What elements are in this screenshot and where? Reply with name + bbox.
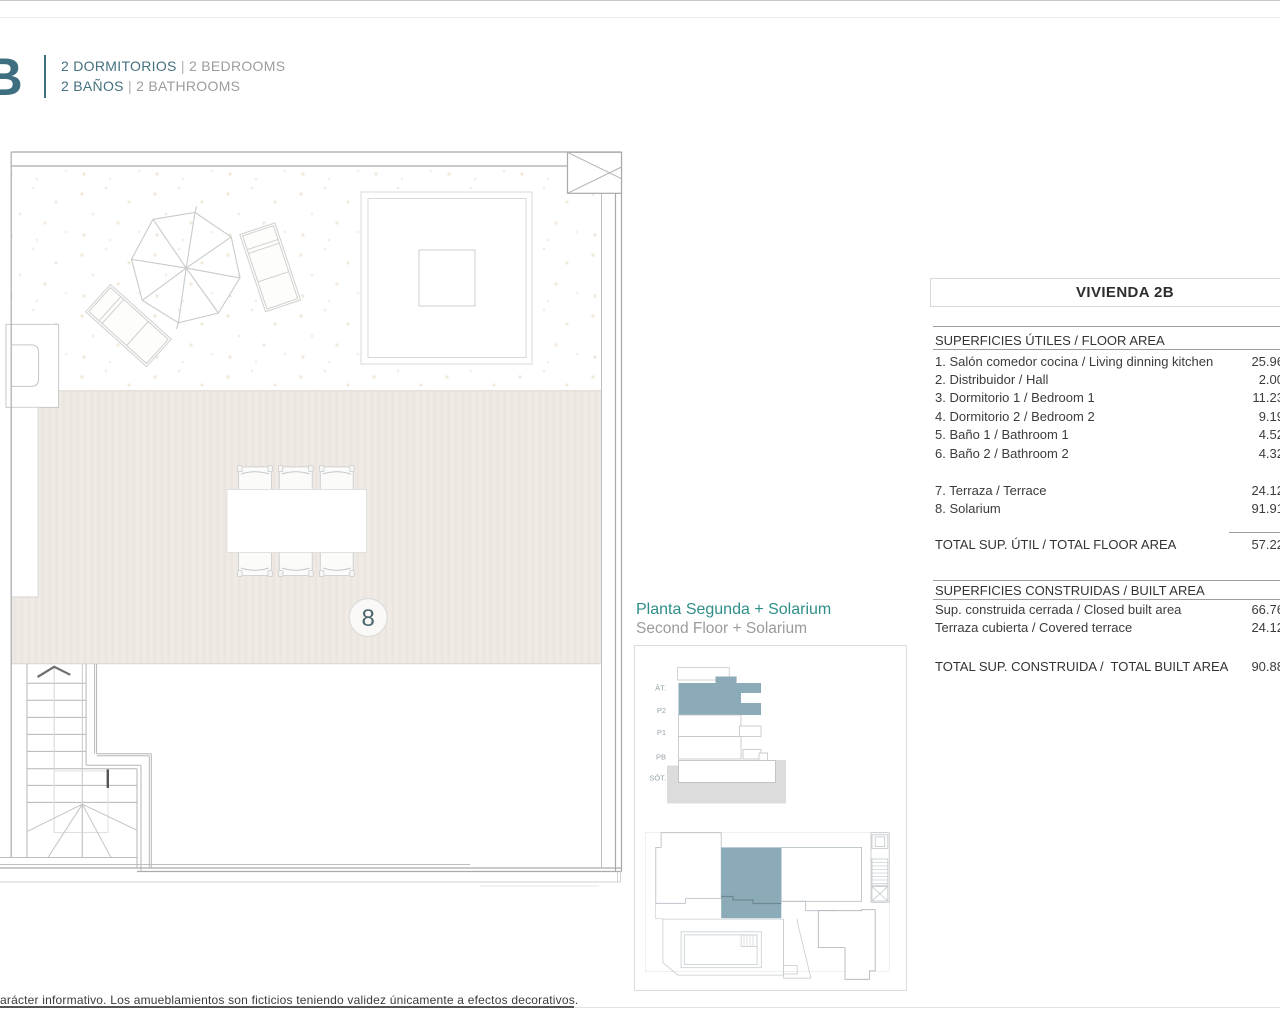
svg-text:8: 8 <box>362 605 375 632</box>
